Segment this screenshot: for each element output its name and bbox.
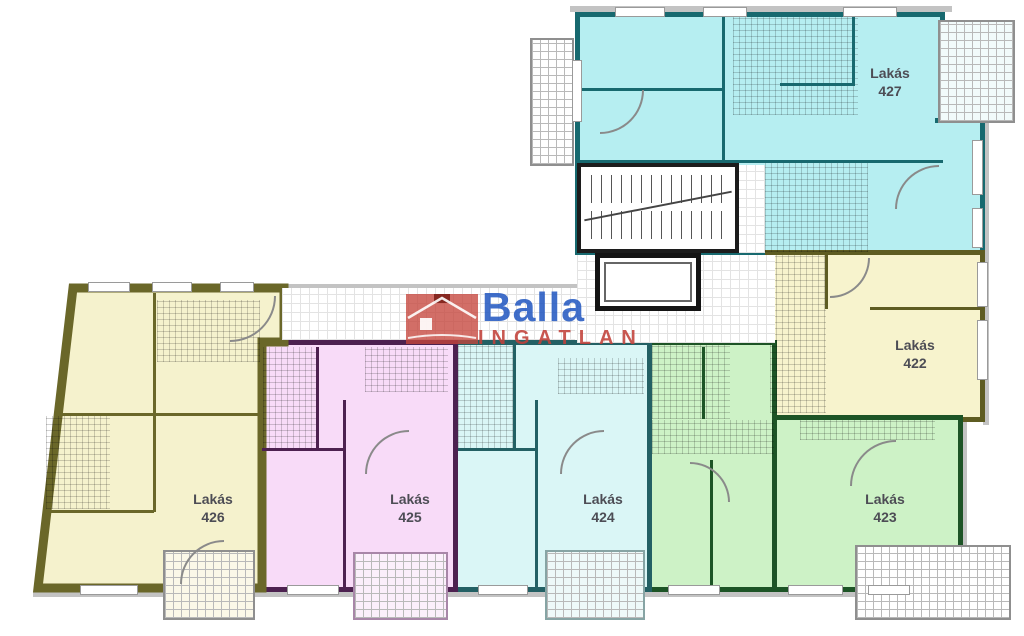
tiled-area <box>770 255 826 413</box>
window <box>88 282 130 292</box>
apartment-number: 427 <box>845 82 935 100</box>
wall-line <box>702 347 705 419</box>
balcony <box>353 552 448 620</box>
stairwell <box>577 163 739 253</box>
apartment-number: 423 <box>840 508 930 526</box>
apartment-425-label: Lakás 425 <box>365 490 455 526</box>
balcony <box>545 550 645 620</box>
window <box>287 585 339 595</box>
tiled-area <box>458 345 513 449</box>
window <box>80 585 138 595</box>
apartment-423-label: Lakás 423 <box>840 490 930 526</box>
window <box>703 7 747 17</box>
floor-plan: Lakás 427 Lakás 422 Lakás 423 Lakás 424 … <box>0 0 1024 636</box>
window <box>788 585 843 595</box>
apartment-number: 425 <box>365 508 455 526</box>
apartment-424-label: Lakás 424 <box>558 490 648 526</box>
apartment-number: 424 <box>558 508 648 526</box>
window <box>977 262 988 307</box>
wall-line <box>535 400 538 590</box>
balcony <box>938 20 1015 123</box>
house-icon <box>406 294 478 344</box>
wall-line <box>722 15 725 163</box>
window <box>572 60 582 122</box>
balcony <box>855 545 1011 620</box>
logo-subtitle-text: INGATLAN <box>478 327 644 350</box>
wall-line <box>825 253 828 309</box>
stair-treads <box>591 175 725 203</box>
wall-line <box>262 448 344 451</box>
apartment-422-label: Lakás 422 <box>870 336 960 372</box>
apartment-427-label: Lakás 427 <box>845 64 935 100</box>
apartment-name: Lakás <box>840 490 930 508</box>
apartment-name: Lakás <box>365 490 455 508</box>
tiled-area <box>46 416 110 509</box>
tiled-area <box>558 358 644 394</box>
wall-line <box>513 345 516 449</box>
window <box>972 140 983 195</box>
window <box>220 282 254 292</box>
wall-line <box>153 293 156 415</box>
wall-line <box>316 347 319 449</box>
corridor <box>737 165 765 253</box>
apartment-number: 422 <box>870 354 960 372</box>
apartment-number: 426 <box>168 508 258 526</box>
wall-line <box>153 415 156 512</box>
window <box>152 282 192 292</box>
tiled-area <box>652 420 774 454</box>
house-window <box>420 318 432 330</box>
window <box>972 208 983 248</box>
window <box>843 7 897 17</box>
wall-line <box>343 400 346 590</box>
wall-line <box>458 448 536 451</box>
balcony <box>530 38 574 166</box>
apartment-426-label: Lakás 426 <box>168 490 258 526</box>
window <box>668 585 720 595</box>
tiled-area <box>733 17 858 115</box>
wall-line <box>60 413 260 416</box>
tiled-area <box>800 420 935 440</box>
window <box>977 320 988 380</box>
tiled-area <box>652 345 730 419</box>
wall-line <box>44 510 154 513</box>
apartment-name: Lakás <box>558 490 648 508</box>
window <box>478 585 528 595</box>
tiled-area <box>263 347 318 449</box>
balla-ingatlan-logo: Balla INGATLAN <box>406 292 671 356</box>
apartment-name: Lakás <box>845 64 935 82</box>
wall-line <box>870 307 982 310</box>
logo-brand-text: Balla <box>482 284 585 331</box>
tiled-area <box>765 162 868 252</box>
apartment-name: Lakás <box>870 336 960 354</box>
apartment-name: Lakás <box>168 490 258 508</box>
window <box>868 585 910 595</box>
window <box>615 7 665 17</box>
wall-line <box>780 83 855 86</box>
